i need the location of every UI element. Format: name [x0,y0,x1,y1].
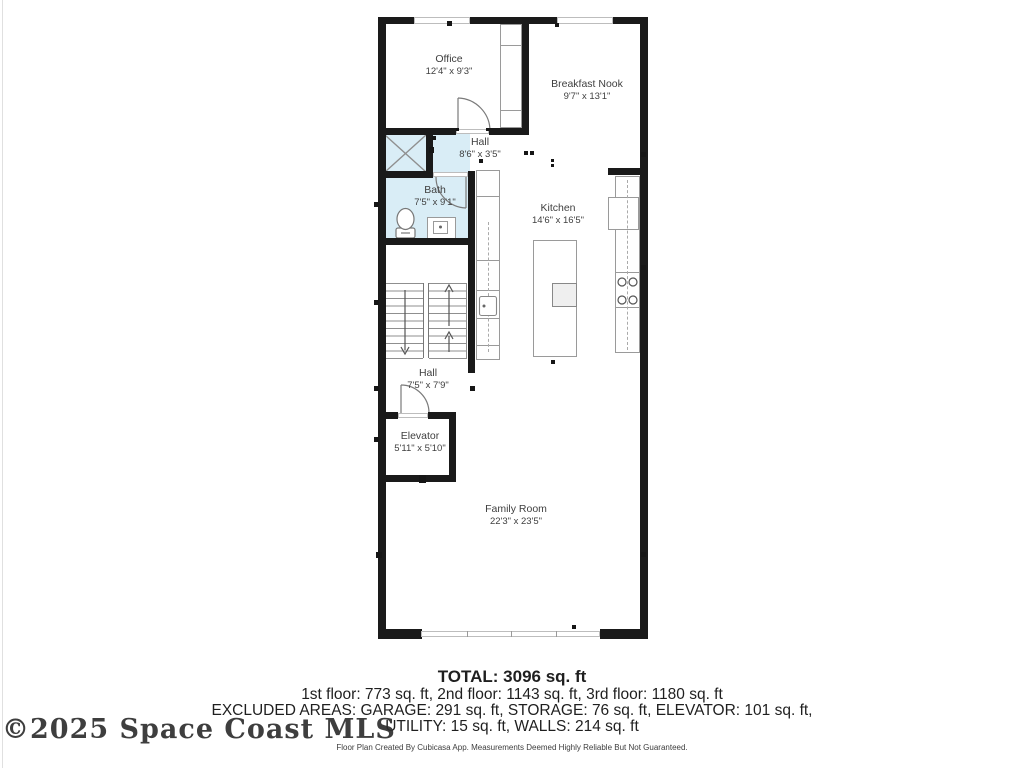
bath-kitchen-wall [468,171,475,373]
wall-marker [374,437,379,442]
room-dims: 12'4" x 9'3" [426,66,473,78]
wall-marker [551,360,555,364]
room-label-hall-bottom: Hall 7'5" x 7'9" [407,367,449,392]
room-label-breakfast-nook: Breakfast Nook 9'7" x 13'1" [551,78,623,103]
island-sink [552,283,577,307]
room-label-office: Office 12'4" x 9'3" [426,53,473,78]
office-closet [500,24,522,128]
room-label-elevator: Elevator 5'11" x 5'10" [394,430,445,455]
refrigerator [608,197,639,230]
wall-marker [555,23,559,27]
wall-marker [429,147,434,153]
wall-marker [524,151,528,155]
bath-bottom-wall [378,238,475,245]
mls-watermark: ©2025 Space Coast MLS [2,714,396,745]
slider-panel-divider [467,631,468,637]
room-label-family-room: Family Room 22'3" x 23'5" [485,503,547,528]
room-name: Family Room [485,503,547,516]
wall-marker [432,136,436,140]
exterior-wall-bottom-right [600,629,648,639]
elevator-bottom-wall [378,475,456,482]
wall-marker [551,164,554,167]
wall-marker [551,159,554,162]
office-bottom-wall [489,128,522,135]
shower [383,133,428,174]
floor-plan-page: Office 12'4" x 9'3" Breakfast Nook 9'7" … [0,0,1024,768]
exterior-wall-right [640,17,648,639]
counter-divider [476,196,500,197]
office-bottom-wall [386,128,456,135]
window [414,17,470,24]
wall-marker [447,21,452,26]
wall-marker [641,552,646,557]
office-door-arc [458,98,490,131]
wall-marker [641,265,646,270]
window [557,17,613,24]
counter-dashed-line [488,222,489,352]
stairs-left-flight [384,283,423,359]
room-dims: 14'6" x 16'5" [532,215,584,227]
wall-marker [374,300,379,305]
exterior-wall-bottom-left [378,629,422,639]
room-label-bath: Bath 7'5" x 9'1" [414,184,456,209]
page-left-border [2,0,3,768]
room-name: Bath [414,184,456,197]
wall-marker [641,152,646,157]
bath-door-threshold [433,172,468,177]
room-label-kitchen: Kitchen 14'6" x 16'5" [532,202,584,227]
bath-top-wall [378,171,433,178]
wall-marker [486,128,489,131]
wall-marker [374,202,379,207]
room-dims: 22'3" x 23'5" [485,516,547,528]
room-dims: 8'6" x 3'5" [459,149,501,161]
wall-marker [374,386,379,391]
wall-marker [376,552,382,558]
office-closet-divider [500,110,522,111]
wall-marker [456,128,459,131]
wall-marker [470,386,475,391]
room-dims: 5'11" x 5'10" [394,443,445,455]
room-dims: 7'5" x 7'9" [407,380,449,392]
counter-dashed-line [627,180,628,350]
room-dims: 7'5" x 9'1" [414,197,456,209]
exterior-wall-left [378,17,386,639]
room-name: Office [426,53,473,66]
slider-panel-divider [511,631,512,637]
office-nook-divider-wall [522,17,529,135]
office-door-threshold [456,129,489,134]
office-closet-divider [500,45,522,46]
wall-marker [572,625,576,629]
elevator-door-threshold [398,413,428,418]
elevator-top-wall [378,412,398,419]
nook-kitchen-wall [608,168,648,175]
slider-panel-divider [556,631,557,637]
room-dims: 9'7" x 13'1" [551,91,623,103]
wall-marker [419,475,426,483]
floor-areas-text: 1st floor: 773 sq. ft, 2nd floor: 1143 s… [0,687,1024,703]
room-name: Breakfast Nook [551,78,623,91]
room-name: Hall [407,367,449,380]
room-name: Kitchen [532,202,584,215]
stairs-center-rail [423,283,429,358]
stairs-right-flight [429,283,467,359]
room-label-hall-top: Hall 8'6" x 3'5" [459,136,501,161]
elevator-right-wall [449,412,456,482]
room-name: Hall [459,136,501,149]
room-name: Elevator [394,430,445,443]
bathroom-sink [433,221,448,234]
wall-marker [530,151,534,155]
total-area-text: TOTAL: 3096 sq. ft [0,668,1024,686]
